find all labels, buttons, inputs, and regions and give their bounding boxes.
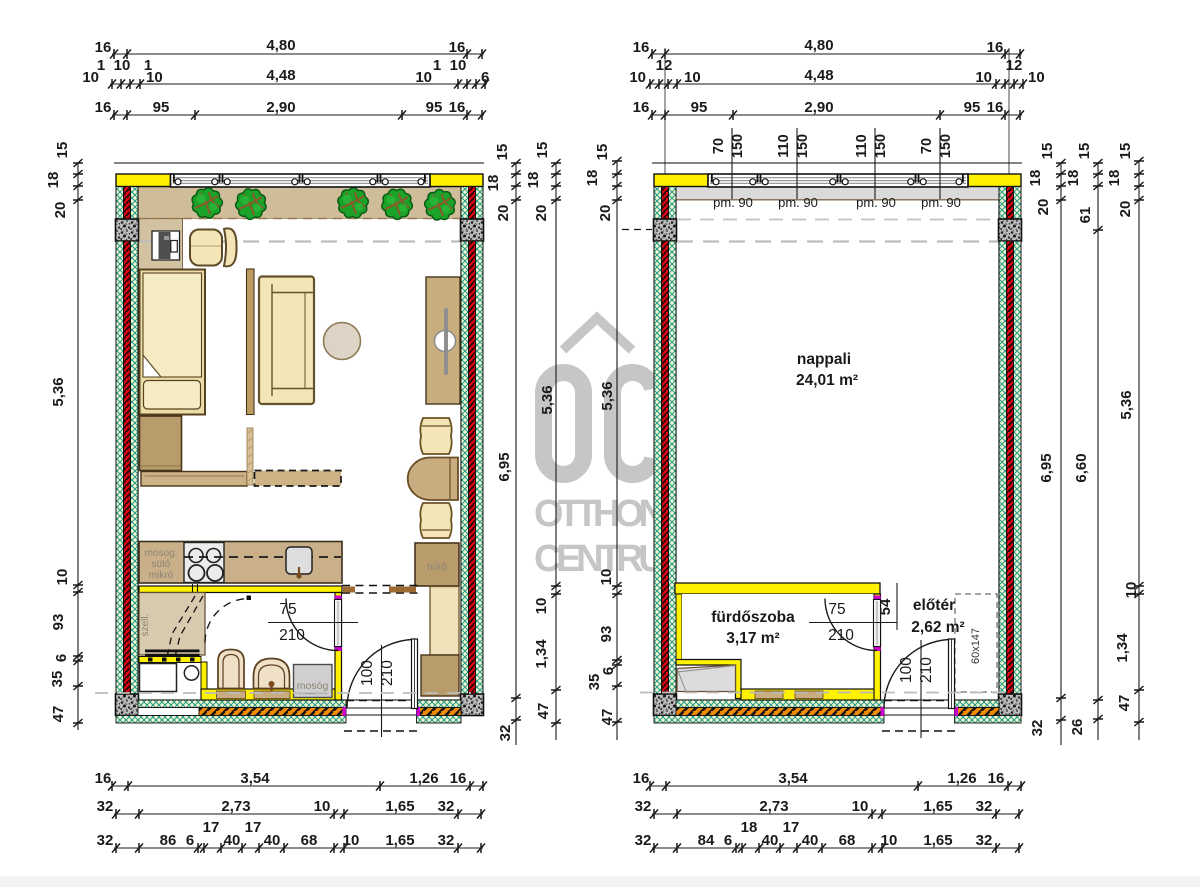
svg-text:10: 10 xyxy=(343,832,360,849)
svg-text:20: 20 xyxy=(597,205,614,222)
svg-text:nappali: nappali xyxy=(797,351,851,368)
svg-text:3,54: 3,54 xyxy=(240,770,270,787)
svg-text:40: 40 xyxy=(802,832,819,849)
svg-text:2,73: 2,73 xyxy=(759,798,788,815)
svg-text:70: 70 xyxy=(711,138,727,154)
svg-text:95: 95 xyxy=(691,99,708,116)
svg-text:16: 16 xyxy=(633,39,650,56)
svg-text:1: 1 xyxy=(433,57,441,74)
svg-text:18: 18 xyxy=(1065,170,1082,187)
svg-text:47: 47 xyxy=(1116,695,1133,712)
svg-text:6: 6 xyxy=(481,69,489,86)
svg-text:26: 26 xyxy=(1069,719,1086,736)
svg-text:5,36: 5,36 xyxy=(599,381,616,410)
svg-text:40: 40 xyxy=(224,832,241,849)
svg-text:93: 93 xyxy=(50,614,67,631)
svg-text:3,17 m²: 3,17 m² xyxy=(726,630,779,647)
svg-text:mikró: mikró xyxy=(149,570,174,581)
svg-text:16: 16 xyxy=(95,39,112,56)
svg-text:93: 93 xyxy=(598,626,615,643)
svg-text:szell.: szell. xyxy=(140,614,151,637)
svg-text:70: 70 xyxy=(919,138,935,154)
svg-text:68: 68 xyxy=(301,832,318,849)
svg-text:10: 10 xyxy=(629,69,646,86)
svg-text:6,95: 6,95 xyxy=(1038,453,1055,482)
svg-text:15: 15 xyxy=(594,144,611,161)
svg-text:12: 12 xyxy=(656,57,673,74)
svg-text:15: 15 xyxy=(54,142,71,159)
svg-text:54: 54 xyxy=(877,598,894,615)
svg-text:100: 100 xyxy=(898,657,915,683)
svg-text:210: 210 xyxy=(918,657,935,683)
svg-text:6,60: 6,60 xyxy=(1073,453,1090,482)
svg-text:15: 15 xyxy=(534,142,551,159)
svg-text:16: 16 xyxy=(987,39,1004,56)
svg-text:20: 20 xyxy=(52,202,69,219)
svg-text:47: 47 xyxy=(535,703,552,720)
svg-text:18: 18 xyxy=(741,819,758,836)
svg-text:110: 110 xyxy=(854,134,870,157)
svg-text:10: 10 xyxy=(146,69,163,86)
svg-text:10: 10 xyxy=(415,69,432,86)
svg-text:OTTHON: OTTHON xyxy=(534,493,666,535)
svg-text:210: 210 xyxy=(279,627,305,644)
svg-text:15: 15 xyxy=(1039,143,1056,160)
svg-text:10: 10 xyxy=(1028,69,1045,86)
svg-text:5,36: 5,36 xyxy=(1118,390,1135,419)
svg-text:75: 75 xyxy=(279,601,296,618)
svg-text:60x147: 60x147 xyxy=(970,628,982,664)
svg-text:110: 110 xyxy=(776,134,792,157)
svg-text:16: 16 xyxy=(633,770,650,787)
svg-text:32: 32 xyxy=(97,832,114,849)
svg-text:10: 10 xyxy=(975,69,992,86)
svg-text:1,65: 1,65 xyxy=(385,798,414,815)
svg-text:12: 12 xyxy=(1006,57,1023,74)
svg-text:32: 32 xyxy=(438,832,455,849)
svg-text:150: 150 xyxy=(795,134,811,158)
svg-text:95: 95 xyxy=(426,99,443,116)
svg-text:18: 18 xyxy=(45,172,62,189)
svg-text:40: 40 xyxy=(264,832,281,849)
svg-text:4,48: 4,48 xyxy=(804,67,833,84)
svg-text:4,48: 4,48 xyxy=(266,67,295,84)
svg-text:pm. 90: pm. 90 xyxy=(921,195,961,210)
svg-text:20: 20 xyxy=(1117,201,1134,218)
svg-text:1,26: 1,26 xyxy=(409,770,438,787)
svg-text:68: 68 xyxy=(839,832,856,849)
svg-text:2,90: 2,90 xyxy=(804,99,833,116)
svg-text:32: 32 xyxy=(438,798,455,815)
svg-text:16: 16 xyxy=(987,99,1004,116)
svg-text:24,01 m²: 24,01 m² xyxy=(796,372,858,389)
svg-text:4,80: 4,80 xyxy=(266,37,295,54)
svg-text:10: 10 xyxy=(450,57,467,74)
svg-text:150: 150 xyxy=(873,134,889,158)
svg-text:1,34: 1,34 xyxy=(1114,633,1131,663)
svg-text:15: 15 xyxy=(494,144,511,161)
svg-text:32: 32 xyxy=(497,725,514,742)
svg-text:mosog.: mosog. xyxy=(145,548,178,559)
svg-text:61: 61 xyxy=(1077,207,1094,224)
svg-text:10: 10 xyxy=(533,598,550,615)
svg-text:32: 32 xyxy=(635,798,652,815)
svg-text:2,62 m²: 2,62 m² xyxy=(911,619,964,636)
svg-text:18: 18 xyxy=(485,175,502,192)
svg-text:16: 16 xyxy=(449,99,466,116)
svg-text:1,26: 1,26 xyxy=(947,770,976,787)
svg-text:16: 16 xyxy=(633,99,650,116)
svg-text:2,90: 2,90 xyxy=(266,99,295,116)
svg-text:fürdőszoba: fürdőszoba xyxy=(711,609,795,626)
svg-text:pm. 90: pm. 90 xyxy=(856,195,896,210)
svg-text:18: 18 xyxy=(1027,170,1044,187)
svg-text:35: 35 xyxy=(586,674,603,691)
svg-text:95: 95 xyxy=(153,99,170,116)
svg-text:32: 32 xyxy=(97,798,114,815)
svg-text:16: 16 xyxy=(450,770,467,787)
svg-text:16: 16 xyxy=(95,770,112,787)
svg-text:17: 17 xyxy=(783,819,800,836)
svg-text:1,34: 1,34 xyxy=(533,639,550,669)
svg-text:10: 10 xyxy=(1123,582,1140,599)
svg-text:3,54: 3,54 xyxy=(778,770,808,787)
svg-text:5,36: 5,36 xyxy=(50,377,67,406)
svg-text:17: 17 xyxy=(203,819,220,836)
svg-text:5,36: 5,36 xyxy=(539,385,556,414)
svg-text:32: 32 xyxy=(976,798,993,815)
svg-text:47: 47 xyxy=(50,706,67,723)
svg-text:2,73: 2,73 xyxy=(221,798,250,815)
svg-text:mosóg: mosóg xyxy=(297,680,329,692)
svg-text:6: 6 xyxy=(186,832,194,849)
svg-text:32: 32 xyxy=(1029,720,1046,737)
svg-text:75: 75 xyxy=(828,601,845,618)
svg-text:10: 10 xyxy=(114,57,131,74)
svg-text:15: 15 xyxy=(1076,143,1093,160)
svg-text:10: 10 xyxy=(852,798,869,815)
svg-text:32: 32 xyxy=(976,832,993,849)
svg-text:10: 10 xyxy=(54,569,71,586)
svg-text:18: 18 xyxy=(1106,170,1123,187)
svg-text:32: 32 xyxy=(635,832,652,849)
svg-text:sütő: sütő xyxy=(152,559,171,570)
svg-text:10: 10 xyxy=(881,832,898,849)
svg-text:20: 20 xyxy=(495,205,512,222)
svg-text:1,65: 1,65 xyxy=(385,832,414,849)
svg-text:6: 6 xyxy=(724,832,732,849)
svg-text:pm. 90: pm. 90 xyxy=(713,195,753,210)
svg-text:20: 20 xyxy=(1035,199,1052,216)
svg-text:1,65: 1,65 xyxy=(923,832,952,849)
svg-text:16: 16 xyxy=(988,770,1005,787)
svg-text:6: 6 xyxy=(53,654,70,662)
svg-text:16: 16 xyxy=(95,99,112,116)
svg-text:hűtő: hűtő xyxy=(427,562,447,573)
svg-text:100: 100 xyxy=(359,660,376,686)
svg-text:1,65: 1,65 xyxy=(923,798,952,815)
svg-text:10: 10 xyxy=(684,69,701,86)
svg-text:150: 150 xyxy=(730,134,746,158)
svg-text:6,95: 6,95 xyxy=(496,452,513,481)
svg-text:pm. 90: pm. 90 xyxy=(778,195,818,210)
svg-text:20: 20 xyxy=(533,205,550,222)
svg-text:18: 18 xyxy=(525,172,542,189)
svg-text:40: 40 xyxy=(762,832,779,849)
svg-text:35: 35 xyxy=(49,671,66,688)
svg-text:95: 95 xyxy=(964,99,981,116)
svg-text:86: 86 xyxy=(160,832,177,849)
svg-text:47: 47 xyxy=(599,709,616,726)
svg-text:10: 10 xyxy=(314,798,331,815)
svg-text:17: 17 xyxy=(245,819,262,836)
svg-text:4,80: 4,80 xyxy=(804,37,833,54)
svg-text:10: 10 xyxy=(598,569,615,586)
svg-text:84: 84 xyxy=(698,832,715,849)
svg-text:210: 210 xyxy=(828,627,854,644)
svg-text:210: 210 xyxy=(379,660,396,686)
svg-text:150: 150 xyxy=(938,134,954,158)
svg-text:18: 18 xyxy=(584,170,601,187)
svg-text:15: 15 xyxy=(1117,143,1134,160)
svg-text:10: 10 xyxy=(82,69,99,86)
svg-text:előtér: előtér xyxy=(913,597,955,614)
svg-text:16: 16 xyxy=(449,39,466,56)
